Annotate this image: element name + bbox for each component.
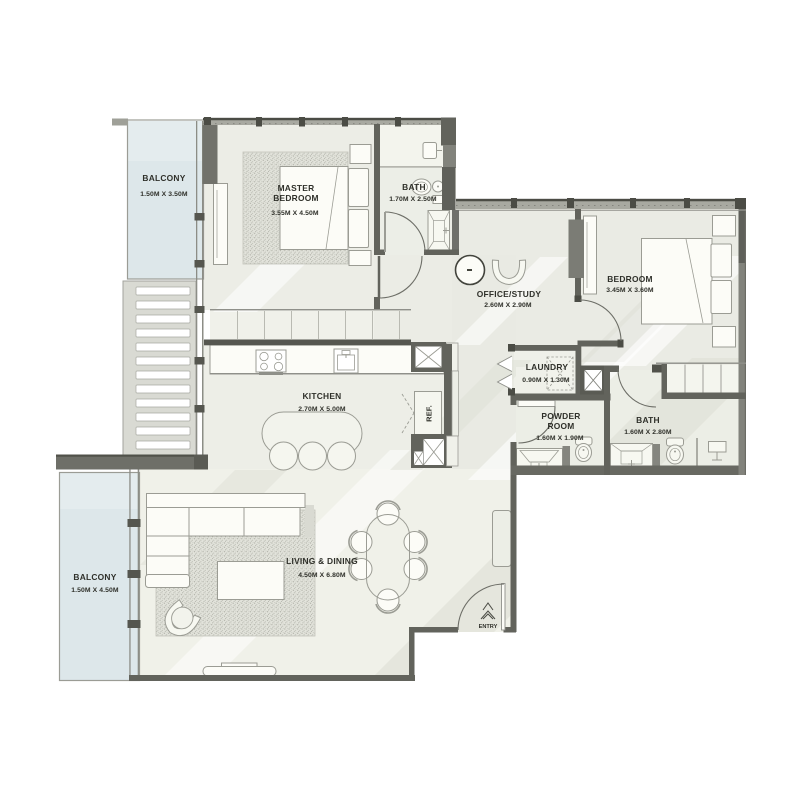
svg-text:REF.: REF. [425, 405, 434, 422]
svg-text:2.70M X 5.00M: 2.70M X 5.00M [298, 406, 346, 413]
svg-text:3.45M X 3.60M: 3.45M X 3.60M [606, 287, 654, 294]
svg-text:MASTER: MASTER [278, 183, 315, 193]
svg-text:BEDROOM: BEDROOM [273, 193, 319, 203]
svg-text:0.90M X 1.30M: 0.90M X 1.30M [522, 377, 570, 384]
svg-text:BATH: BATH [402, 182, 426, 192]
svg-text:LAUNDRY: LAUNDRY [526, 362, 569, 372]
svg-text:ROOM: ROOM [547, 421, 574, 431]
svg-text:4.50M X 6.80M: 4.50M X 6.80M [298, 572, 346, 579]
svg-text:ENTRY: ENTRY [479, 624, 498, 630]
svg-text:POWDER: POWDER [541, 411, 580, 421]
svg-text:1.50M X 3.50M: 1.50M X 3.50M [140, 191, 188, 198]
svg-text:OFFICE/STUDY: OFFICE/STUDY [477, 289, 542, 299]
svg-text:1.70M X 2.50M: 1.70M X 2.50M [389, 196, 437, 203]
svg-text:1.60M X 1.90M: 1.60M X 1.90M [536, 435, 584, 442]
svg-text:2.60M X 2.90M: 2.60M X 2.90M [484, 302, 532, 309]
svg-text:BALCONY: BALCONY [142, 173, 185, 183]
svg-text:LIVING & DINING: LIVING & DINING [286, 556, 358, 566]
svg-text:BATH: BATH [636, 415, 660, 425]
svg-text:KITCHEN: KITCHEN [303, 391, 342, 401]
svg-text:1.50M X 4.50M: 1.50M X 4.50M [71, 587, 119, 594]
svg-text:1.60M X 2.80M: 1.60M X 2.80M [624, 429, 672, 436]
svg-text:BEDROOM: BEDROOM [607, 274, 653, 284]
svg-text:BALCONY: BALCONY [73, 572, 116, 582]
svg-text:3.55M X 4.50M: 3.55M X 4.50M [271, 210, 319, 217]
